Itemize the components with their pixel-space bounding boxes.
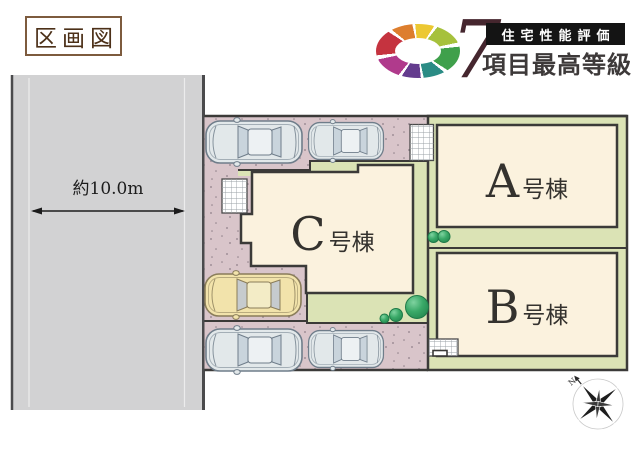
building-a-label: A 号棟 [437,158,617,204]
badge-subtitle: 項目最高等級 [482,45,632,80]
building-a-letter: A [486,158,519,204]
bush-icon [390,309,403,322]
car-icon [206,118,302,167]
building-c-letter: C [290,211,325,257]
car-icon [205,271,301,320]
building-a-suffix: 号棟 [522,179,568,202]
car-icon [309,120,384,163]
bush-icon [428,232,439,243]
plot-plan-page: N 区画図 7 住宅性能評価 項目最高等級 約10.0m A 号棟 B 号棟 C… [0,0,640,461]
page-title: 区画図 [25,16,122,56]
car-icon [206,326,302,375]
performance-badge: 7 住宅性能評価 項目最高等級 [374,10,636,92]
bush-icon [438,231,450,243]
tile-pad-b [429,339,458,356]
car-icon [309,328,384,371]
rainbow-ring-hole [395,38,441,64]
building-b-suffix: 号棟 [522,305,568,328]
building-b-label: B 号棟 [437,284,617,330]
road-strip [11,75,204,410]
bush-icon [406,296,429,319]
road-width-label: 約10.0m [48,174,168,199]
tile-pad-c [222,179,247,213]
tile-pad-top [410,125,434,161]
building-b-letter: B [486,284,520,330]
badge-box-label: 住宅性能評価 [486,23,625,45]
building-c-suffix: 号棟 [329,232,375,255]
bush-icon [380,314,389,323]
building-c-label: C 号棟 [252,211,413,257]
